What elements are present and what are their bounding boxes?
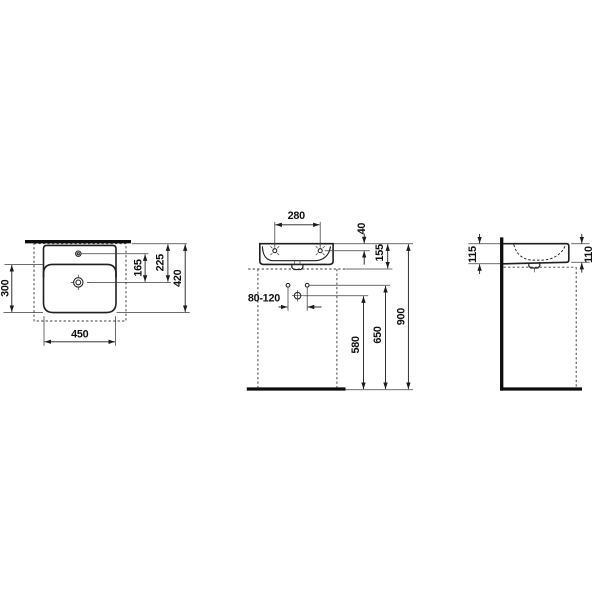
fixing-hole-left-ring	[273, 249, 277, 253]
dim-420: 420	[172, 244, 185, 312]
tap-hole-outer-ring	[76, 251, 81, 256]
dim-label-225: 225	[155, 254, 167, 272]
dim-label-450: 450	[71, 328, 89, 340]
dim-label-580: 580	[350, 336, 362, 354]
dim-110: 110	[582, 234, 595, 273]
extension-lines	[275, 222, 413, 390]
side-view: 115 110	[467, 234, 595, 391]
dim-label-280: 280	[288, 210, 306, 222]
dim-900: 900	[395, 244, 408, 389]
supply-hole-left-symbol	[286, 283, 290, 287]
dim-label-650: 650	[372, 326, 384, 344]
dim-225: 225	[155, 244, 168, 281]
technical-drawing-sheet: 300 165 225 420 450	[0, 0, 600, 600]
fixing-hole-right-ring	[318, 249, 322, 253]
dim-280: 280	[275, 210, 319, 225]
dim-450: 450	[45, 328, 115, 341]
dim-label-420: 420	[172, 269, 184, 287]
dim-580: 580	[350, 296, 363, 389]
supply-hole-right-symbol	[305, 283, 309, 287]
tap-hole-symbol	[76, 251, 81, 256]
front-view: 280 40 155 80-120 580 650 900	[247, 210, 413, 390]
dim-80-120: 80-120	[248, 292, 322, 307]
bowl-back-edge	[44, 264, 117, 277]
dim-label-165: 165	[132, 259, 144, 277]
drain-inner-ring	[76, 280, 81, 285]
waste-pipe-crosshair	[292, 290, 303, 301]
dim-label-110: 110	[583, 246, 595, 263]
tap-hole-inner-ring	[77, 253, 79, 255]
dim-650: 650	[372, 286, 385, 389]
dim-label-80-120: 80-120	[248, 292, 280, 304]
washbasin-technical-drawing: 300 165 225 420 450	[0, 0, 600, 600]
pedestal-hidden-outline-side	[504, 267, 577, 387]
dim-300: 300	[0, 265, 12, 312]
pedestal-hidden-outline	[248, 269, 345, 387]
dim-165: 165	[132, 254, 145, 281]
drain-outer-ring	[74, 278, 83, 287]
bowl-hidden-profile	[514, 245, 566, 261]
dim-label-900: 900	[395, 308, 407, 326]
waste-pipe-symbol	[292, 290, 303, 301]
dim-label-40: 40	[356, 223, 368, 235]
top-view: 300 165 225 420 450	[0, 242, 190, 346]
dim-155: 155	[374, 244, 388, 268]
dim-label-155: 155	[374, 244, 386, 262]
drain-symbol	[71, 275, 90, 290]
extension-lines	[468, 244, 589, 264]
dim-label-300: 300	[0, 279, 12, 297]
dim-label-115: 115	[467, 246, 479, 263]
dim-115: 115	[467, 234, 479, 274]
